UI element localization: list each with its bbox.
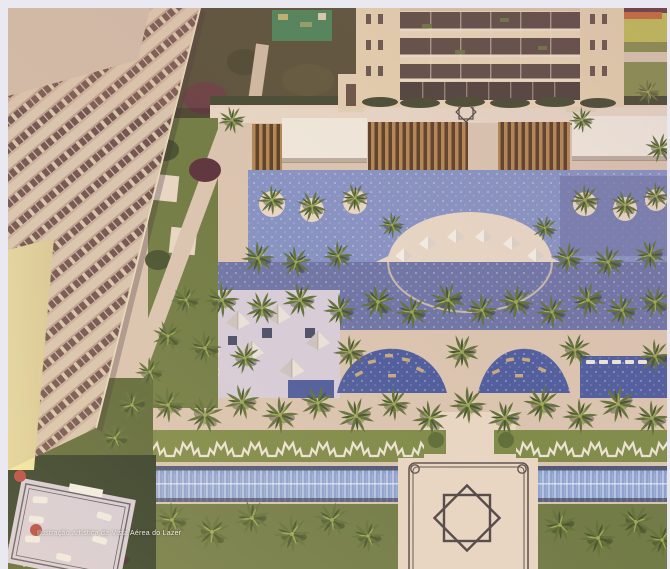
caption: Ilustração artística da Vista Aérea do L… [37, 530, 181, 537]
aerial-rendering: Ilustração artística da Vista Aérea do L… [0, 0, 670, 569]
scene-canvas [0, 0, 670, 569]
